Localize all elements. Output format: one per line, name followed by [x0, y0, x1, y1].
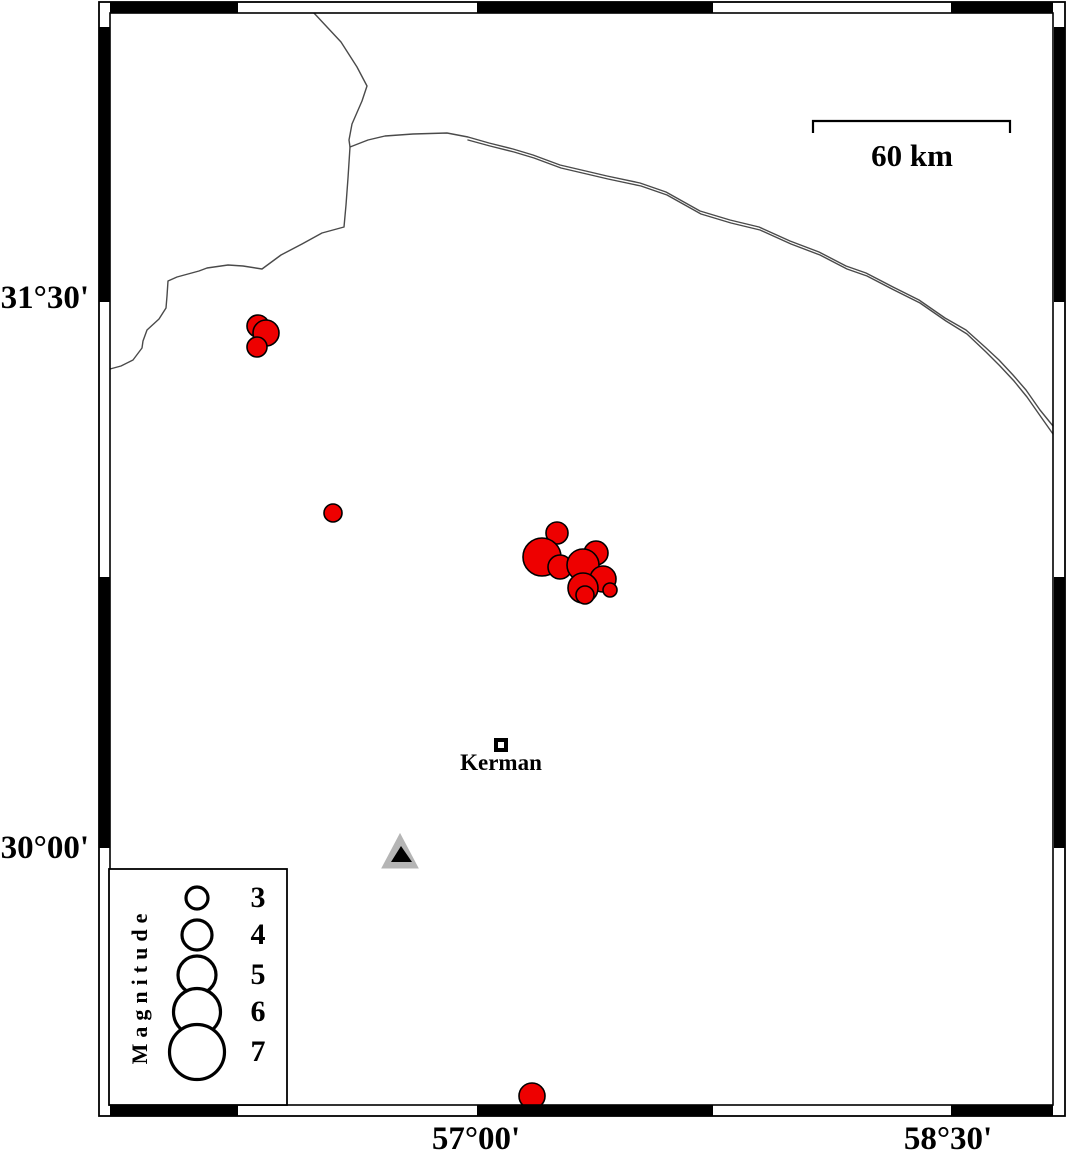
legend-value-3: 3 — [251, 881, 266, 915]
frame-tick-segment — [1054, 27, 1065, 302]
earthquake-marker — [576, 586, 594, 604]
legend-circle-7 — [170, 1025, 225, 1080]
frame-tick-segment — [99, 577, 110, 848]
legend-circle-4 — [182, 920, 212, 950]
lon-label-57-00: 57°00' — [432, 1121, 520, 1154]
lat-label-30-00: 30°00' — [0, 830, 89, 867]
border-road-west — [110, 12, 367, 369]
road-east-strand-2 — [468, 140, 1053, 434]
city-marker — [496, 740, 506, 750]
city-label: Kerman — [460, 750, 542, 776]
earthquake-marker — [247, 337, 267, 357]
frame-tick-segment — [951, 1105, 1053, 1116]
frame-tick-segment — [99, 27, 110, 302]
lat-label-31-30: 31°30' — [0, 280, 89, 317]
frame-tick-segment — [1054, 577, 1065, 848]
frame-tick-segment — [951, 2, 1053, 13]
earthquake-marker — [324, 504, 342, 522]
earthquake-marker — [603, 583, 617, 597]
frame-tick-segment — [110, 2, 238, 13]
frame-tick-segment — [477, 1105, 713, 1116]
legend-value-7: 7 — [251, 1035, 266, 1069]
legend-circle-3 — [186, 887, 208, 909]
scale-bar-label: 60 km — [871, 138, 953, 174]
legend-value-4: 4 — [251, 918, 266, 952]
frame-tick-segment — [110, 1105, 238, 1116]
lon-label-58-30: 58°30' — [904, 1121, 992, 1154]
frame-tick-segment — [477, 2, 713, 13]
legend-title: Magnitude — [127, 908, 153, 1065]
legend-value-6: 6 — [251, 995, 266, 1029]
legend-value-5: 5 — [251, 958, 266, 992]
road-east-strand-1 — [350, 133, 1053, 426]
seismicity-map-figure: 31°30' 30°00' 57°00' 58°30' 60 km Kerman… — [0, 0, 1066, 1154]
scale-bar — [813, 121, 1010, 133]
